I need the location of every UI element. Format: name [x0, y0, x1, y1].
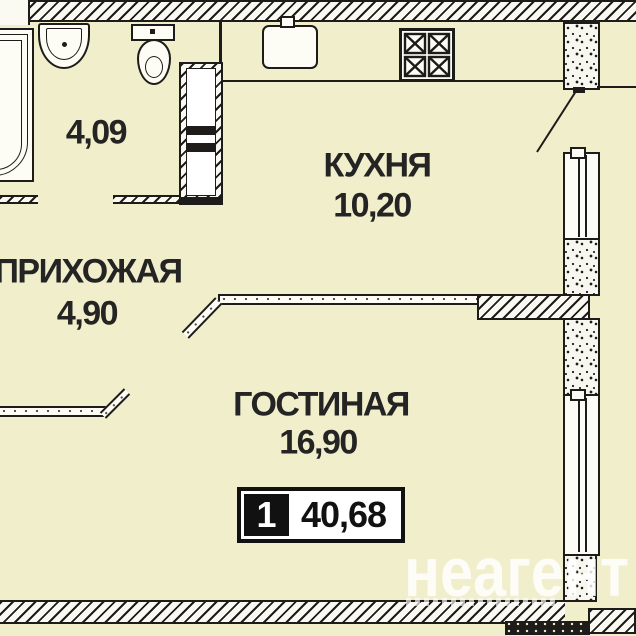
hallway-area-label: 4,90 — [57, 295, 117, 334]
top-left-wall-end — [0, 0, 30, 25]
entry-pier — [563, 22, 600, 90]
total-area-badge: 1 40,68 — [237, 487, 405, 543]
hallway-name-label: ПРИХОЖАЯ — [0, 253, 182, 292]
kitchen-counter-line — [222, 80, 563, 82]
kitchen-area-label: 10,20 — [333, 187, 411, 226]
window-lower-glassline-1 — [578, 398, 580, 552]
kitchen-name-label: КУХНЯ — [324, 147, 431, 186]
washbasin-drain-dot — [62, 42, 67, 47]
window-lower — [563, 394, 600, 556]
floor-plan: 4,09 КУХНЯ 10,20 ПРИХОЖАЯ 4,90 ГОСТИНАЯ … — [0, 0, 636, 636]
living-partition-wall-thick — [477, 294, 590, 320]
watermark-subtext-strip — [406, 598, 558, 606]
bathtub-inner-line-2 — [0, 40, 22, 170]
window-lower-casement — [570, 389, 586, 401]
window-upper — [563, 152, 600, 240]
bathroom-bottom-wall-left — [0, 195, 38, 204]
bathroom-area-label: 4,09 — [66, 114, 126, 153]
stove-icon — [399, 28, 455, 84]
living-area-label: 16,90 — [279, 424, 357, 463]
toilet-bowl-inner — [145, 56, 163, 78]
living-name-label: ГОСТИНАЯ — [233, 386, 409, 425]
bathroom-bottom-wall-right — [113, 195, 180, 204]
window-lower-glassline-2 — [585, 398, 587, 552]
kitchen-sink-icon — [262, 25, 318, 69]
living-partition-wall — [218, 294, 478, 305]
kitchen-sink-faucet — [280, 16, 295, 28]
bottom-wall-footing — [505, 621, 590, 635]
bottom-right-wall — [588, 608, 636, 634]
window-upper-glassline-2 — [585, 155, 587, 237]
facade-pier-a — [563, 238, 600, 296]
rooms-count: 1 — [244, 494, 289, 536]
watermark-text: неагент — [404, 537, 629, 607]
window-upper-glassline-1 — [578, 155, 580, 237]
facade-pier-b — [563, 318, 600, 396]
loggia-line — [597, 86, 636, 88]
hallway-lower-wall-diagonal — [100, 388, 130, 418]
window-upper-casement — [570, 147, 586, 159]
ventilation-shaft-divider-2 — [186, 143, 216, 152]
total-area-value: 40,68 — [289, 494, 398, 536]
ventilation-shaft-base — [179, 197, 223, 205]
top-exterior-wall — [0, 0, 636, 22]
ventilation-shaft-divider-1 — [186, 126, 216, 135]
living-partition-wall-diagonal — [182, 297, 223, 338]
toilet-tank-button — [150, 29, 155, 34]
entry-pier-tick — [573, 87, 585, 93]
hallway-lower-wall — [0, 406, 106, 417]
